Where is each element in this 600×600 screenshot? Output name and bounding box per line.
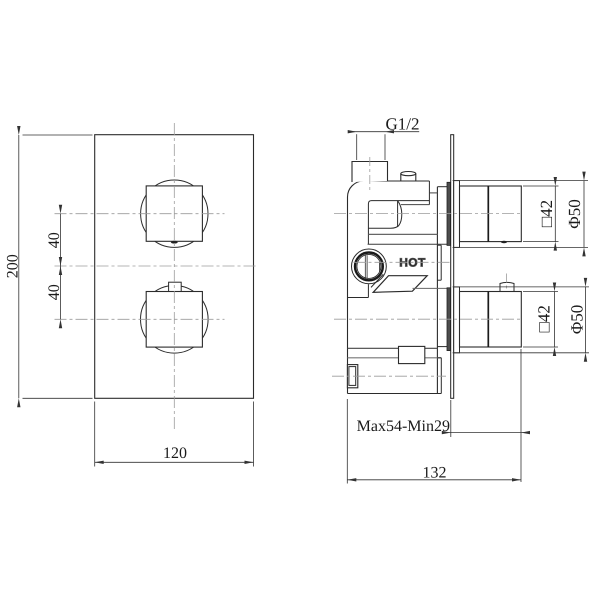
svg-text:120: 120 <box>163 445 187 462</box>
svg-text:□42: □42 <box>535 305 554 332</box>
svg-text:Φ50: Φ50 <box>565 199 584 228</box>
svg-text:132: 132 <box>423 465 447 482</box>
svg-text:Max54-Min29: Max54-Min29 <box>357 418 450 435</box>
svg-text:40: 40 <box>46 232 63 248</box>
svg-text:40: 40 <box>46 284 63 300</box>
svg-text:Φ50: Φ50 <box>568 305 587 334</box>
svg-text:200: 200 <box>5 254 22 278</box>
svg-text:□42: □42 <box>537 200 556 227</box>
